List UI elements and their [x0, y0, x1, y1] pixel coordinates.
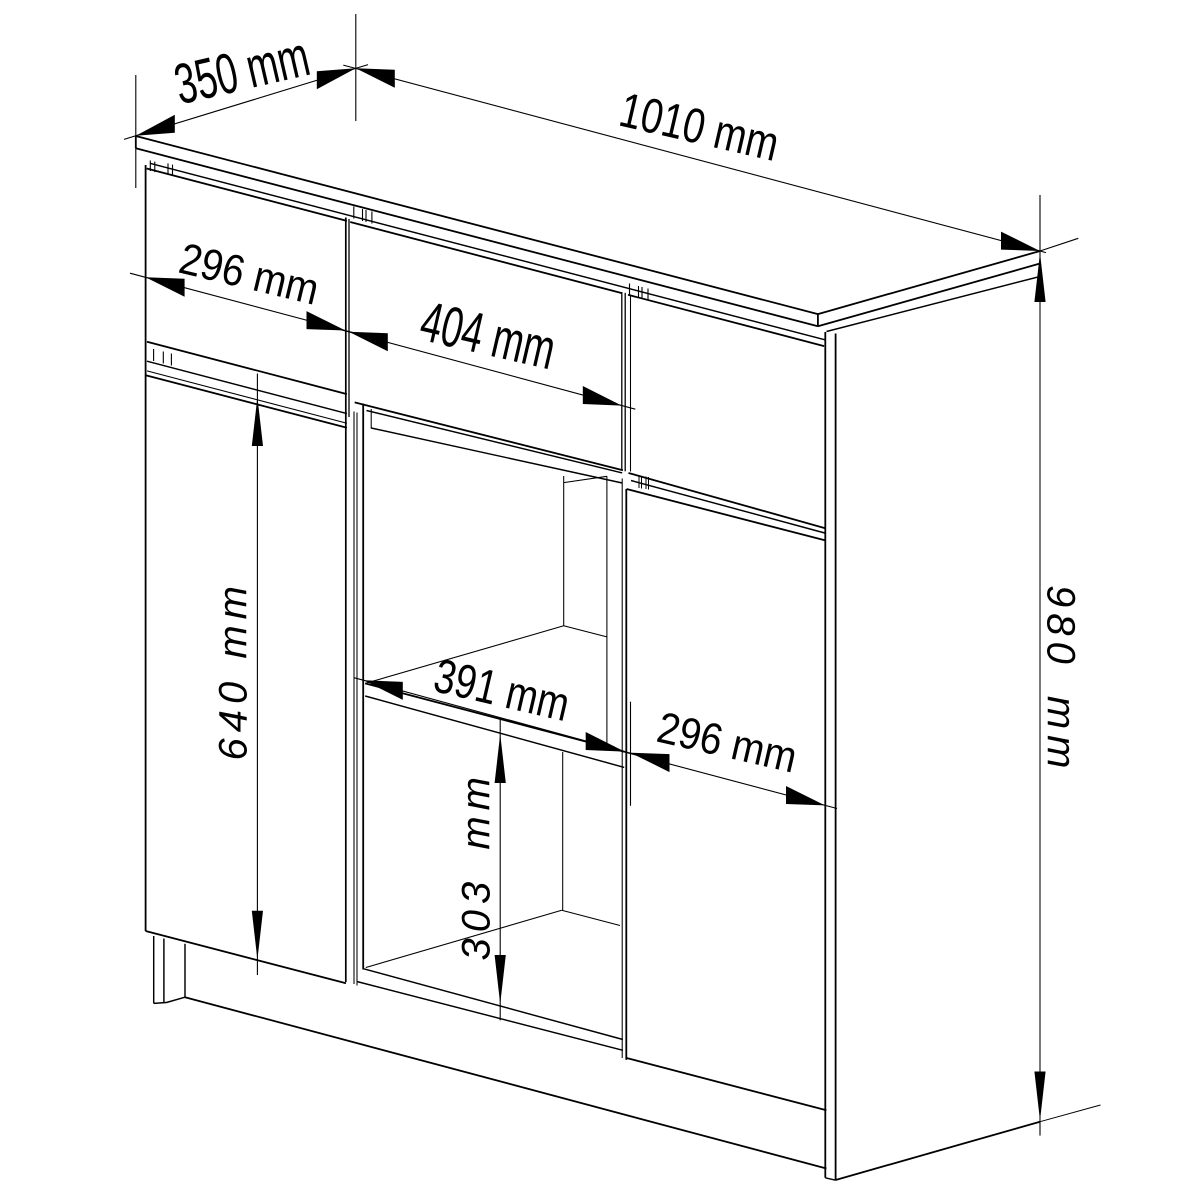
svg-text:303 mm: 303 mm — [455, 771, 499, 961]
svg-text:640 mm: 640 mm — [212, 580, 256, 761]
svg-text:980 mm: 980 mm — [1039, 585, 1083, 775]
